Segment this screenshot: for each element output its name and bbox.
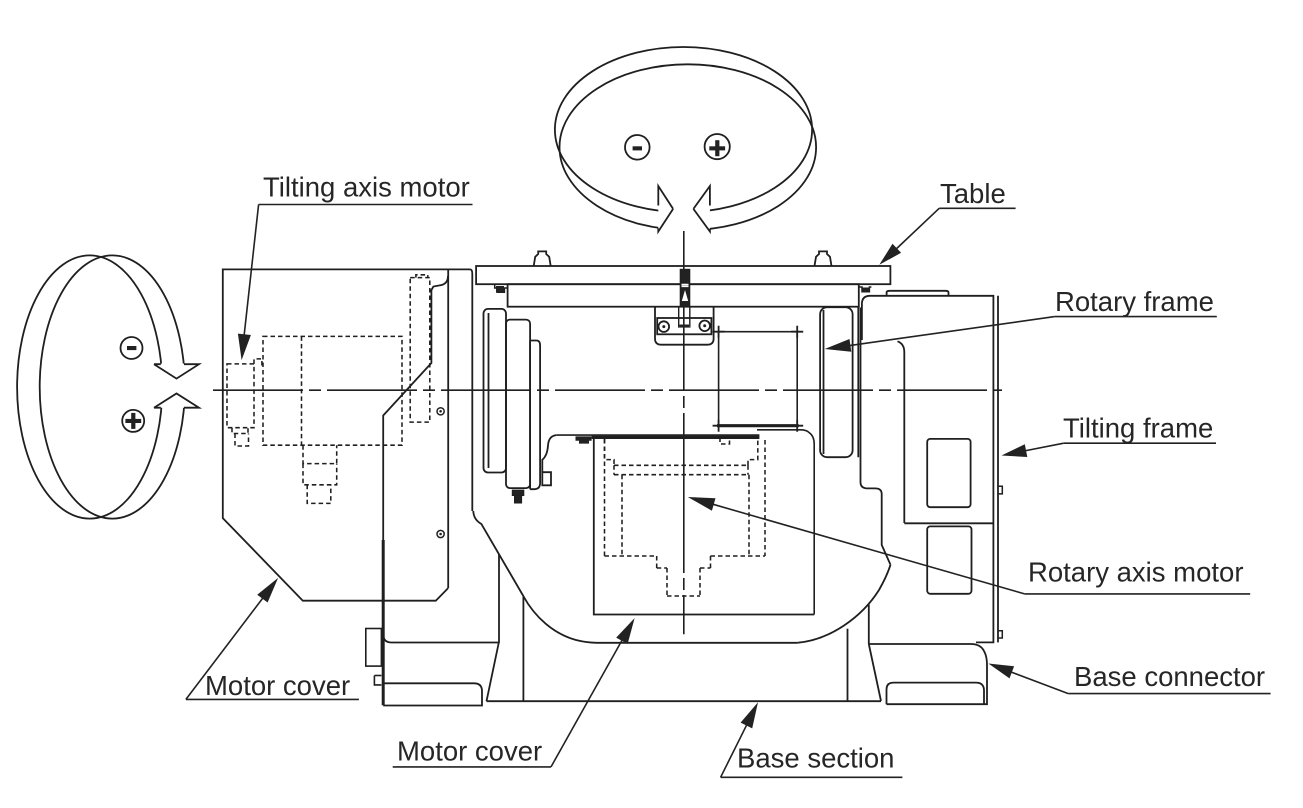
- svg-text:Rotary frame: Rotary frame: [1055, 286, 1214, 317]
- svg-text:Table: Table: [940, 178, 1006, 209]
- svg-text:Base section: Base section: [737, 743, 894, 774]
- svg-text:Motor cover: Motor cover: [397, 736, 542, 767]
- svg-text:Tilting axis motor: Tilting axis motor: [263, 172, 470, 203]
- svg-text:Base connector: Base connector: [1074, 661, 1265, 692]
- svg-text:Motor cover: Motor cover: [205, 670, 350, 701]
- svg-text:Rotary axis motor: Rotary axis motor: [1028, 557, 1243, 588]
- svg-text:Tilting frame: Tilting frame: [1063, 413, 1213, 444]
